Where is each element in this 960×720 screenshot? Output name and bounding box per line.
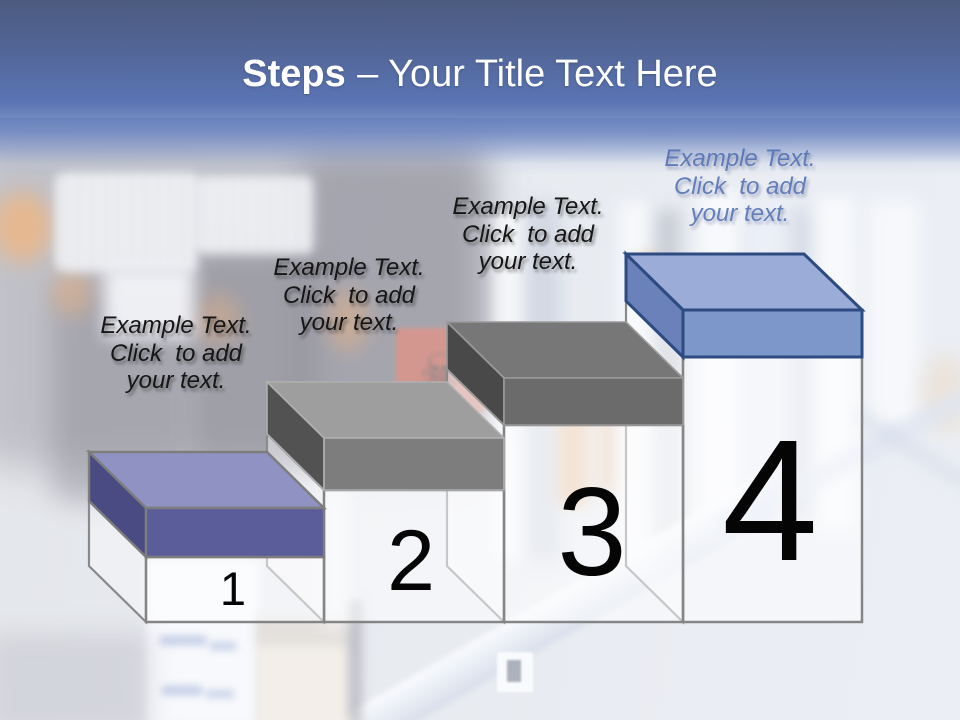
step-3-number[interactable]: 3 [557,463,627,602]
step-3-label[interactable]: Example Text. Click to add your text. [433,193,623,276]
step-2-box-front[interactable] [324,438,504,490]
step-4-label-line-3: your text. [645,200,835,228]
slide-title-emphasis: Steps [242,53,345,95]
slide-title[interactable]: Steps– Your Title Text Here [0,52,960,96]
step-4-box-front[interactable] [683,310,862,357]
slide-title-rest: – Your Title Text Here [357,53,718,95]
step-1-label[interactable]: Example Text. Click to add your text. [81,312,271,395]
step-2-label-line-2: Click to add [254,282,444,310]
step-2-label-line-3: your text. [254,309,444,337]
step-4-label-line-2: Click to add [645,173,835,201]
step-2-number[interactable]: 2 [387,513,435,609]
step-1-label-line-1: Example Text. [81,312,271,340]
step-3-label-line-1: Example Text. [433,193,623,221]
step-3-label-line-3: your text. [433,248,623,276]
step-3-box-front[interactable] [504,378,683,425]
step-4-label[interactable]: Example Text. Click to add your text. [645,145,835,228]
slide: ☠ [0,0,960,720]
step-3-label-line-2: Click to add [433,221,623,249]
step-1-number[interactable]: 1 [220,562,246,615]
step-4-label-line-1: Example Text. [645,145,835,173]
step-4-number[interactable]: 4 [722,403,818,597]
step-2-label-line-1: Example Text. [254,254,444,282]
step-1-label-line-3: your text. [81,367,271,395]
step-2-label[interactable]: Example Text. Click to add your text. [254,254,444,337]
step-1-label-line-2: Click to add [81,340,271,368]
step-1-box-front[interactable] [146,508,324,557]
